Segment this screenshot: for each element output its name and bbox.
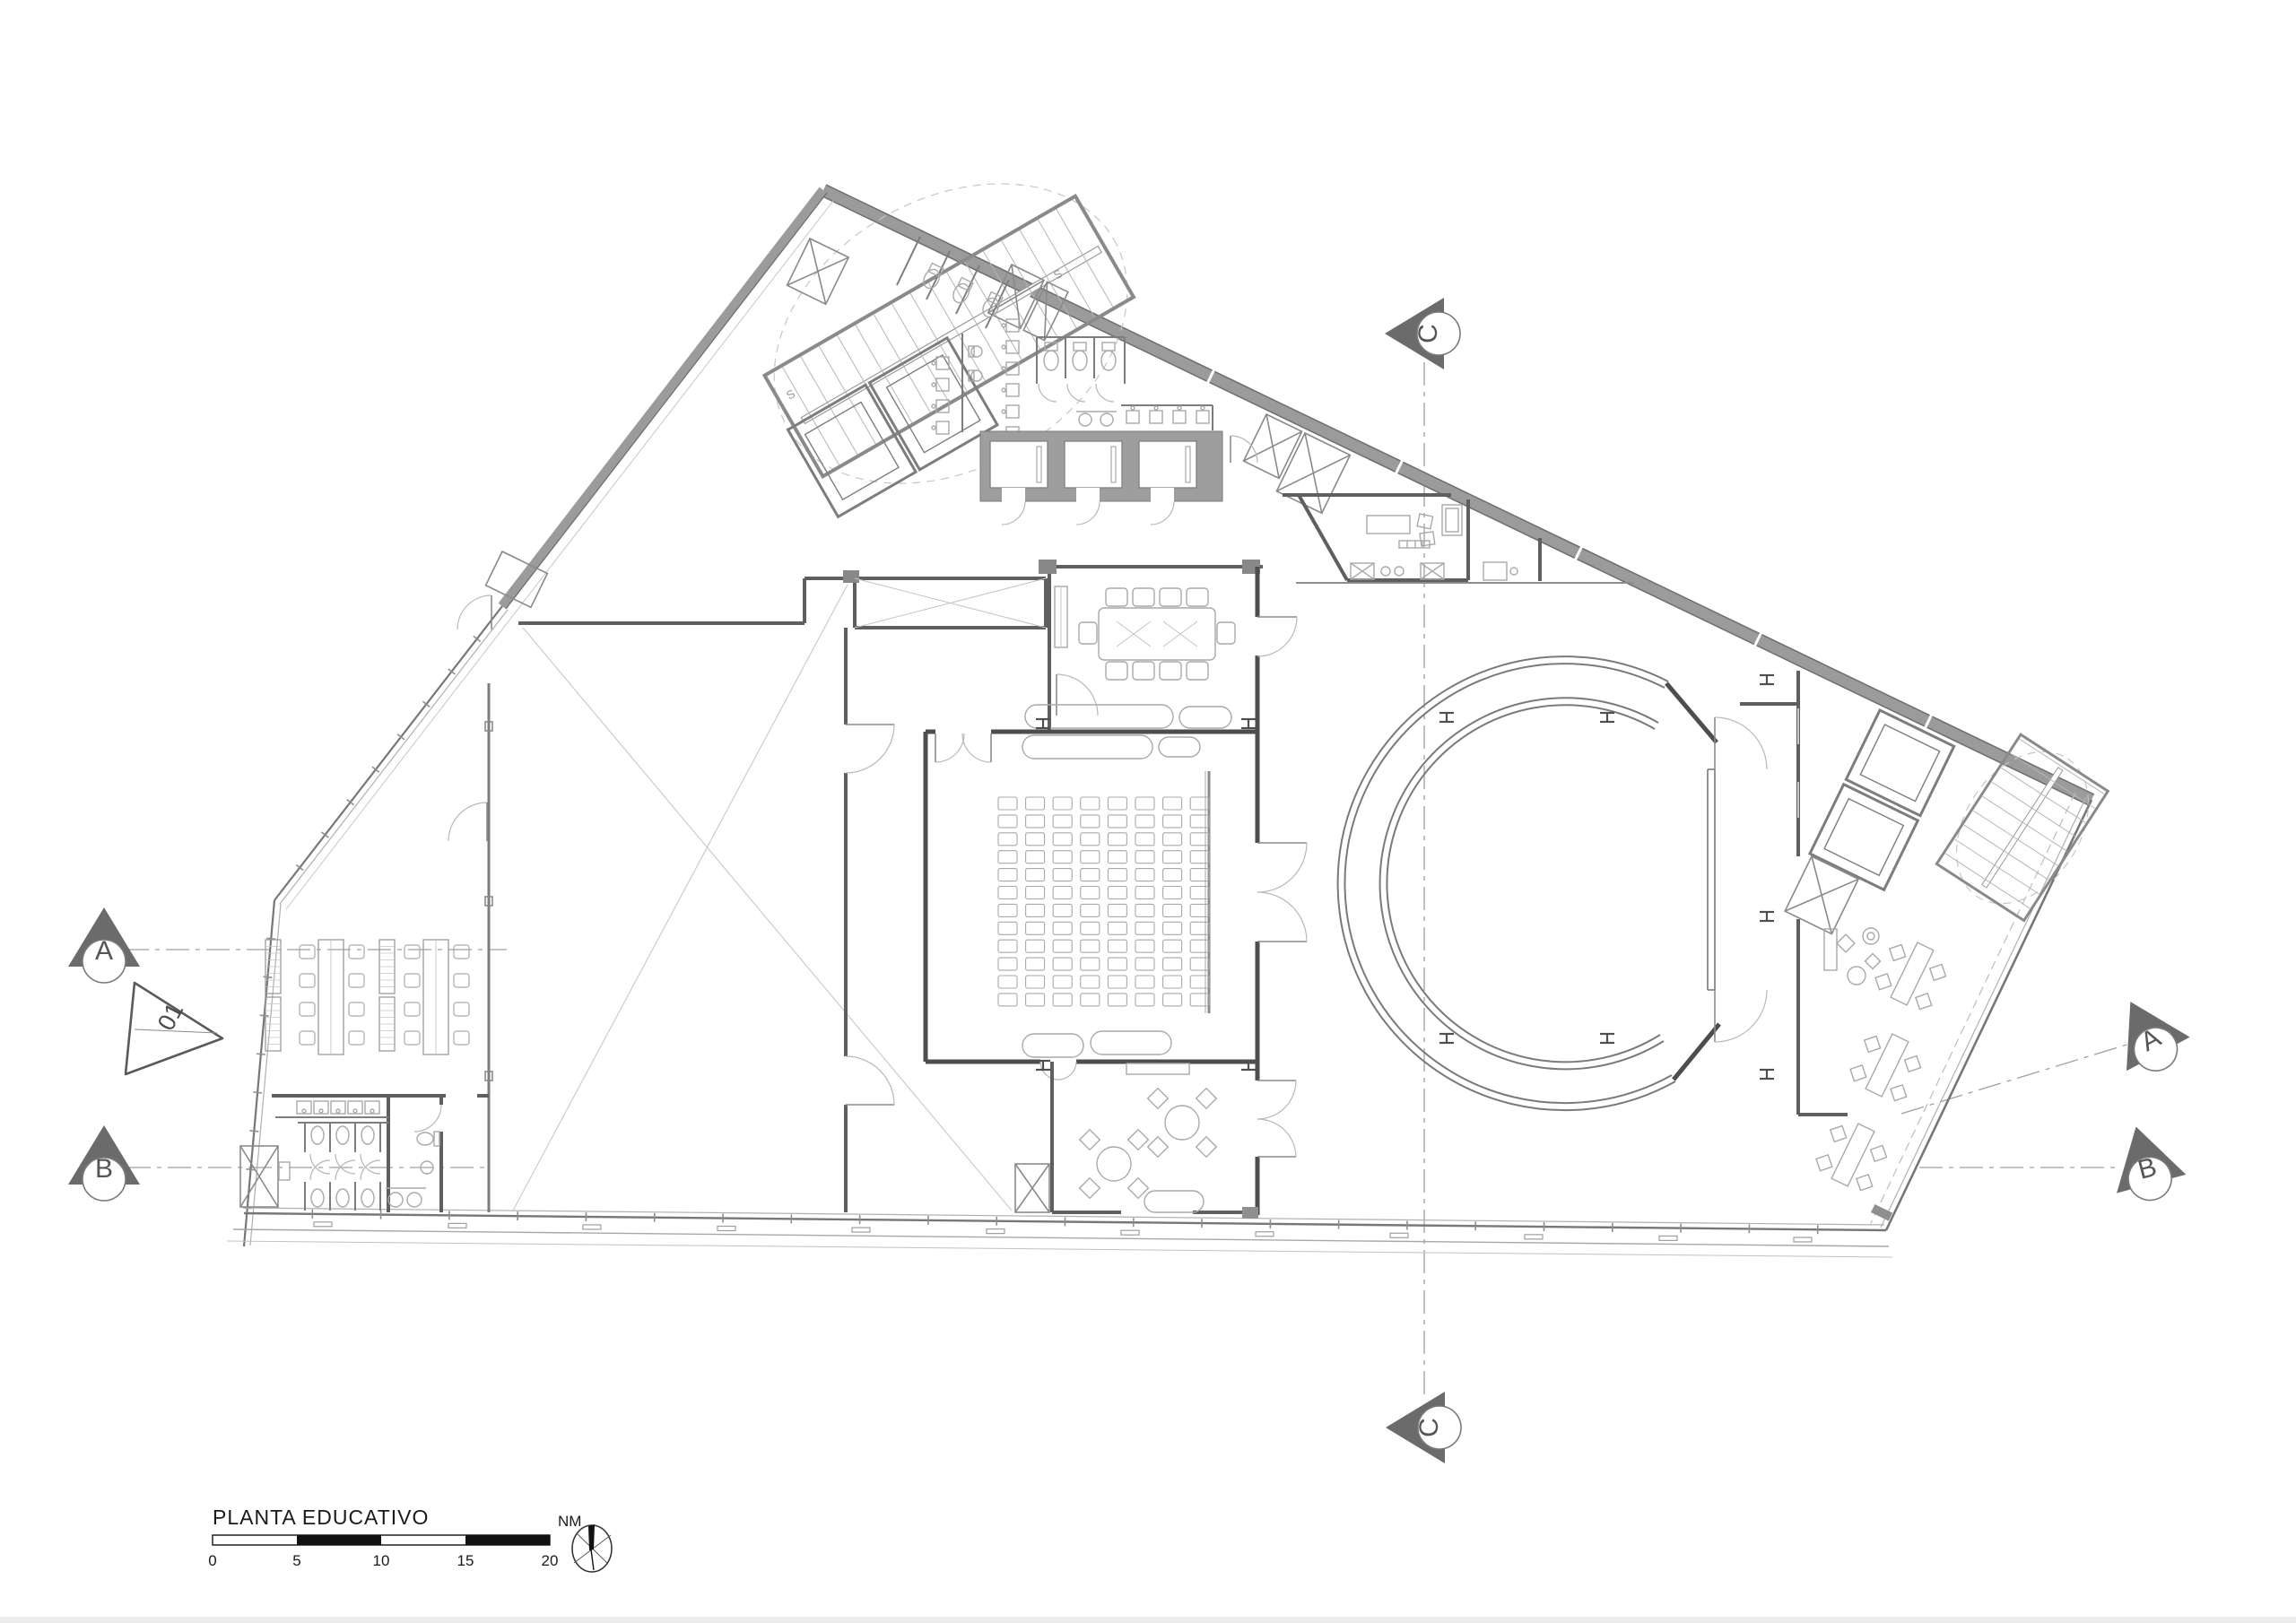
accessible-wc	[386, 1132, 439, 1207]
grid-marker-c-bottom: C	[1386, 1392, 1461, 1463]
north-compass: NM	[558, 1513, 612, 1572]
meeting-table	[1099, 608, 1215, 660]
auditorium-seating	[998, 797, 1209, 1006]
scale-0: 0	[208, 1552, 216, 1569]
bathrooms-sw	[240, 1096, 489, 1212]
plan-title: PLANTA EDUCATIVO	[213, 1506, 429, 1529]
meeting-room	[1039, 560, 1263, 733]
grid-lines	[126, 362, 2133, 1397]
grid-letter: C	[1414, 1418, 1444, 1437]
east-corridor-wall	[1257, 567, 1307, 1215]
sheet-edge	[0, 1617, 2296, 1623]
elevators-east	[1810, 710, 1954, 890]
grid-marker-a-left: A	[68, 907, 140, 983]
circular-room	[1338, 656, 1767, 1110]
scale-20: 20	[542, 1552, 559, 1569]
booth-rooms	[980, 431, 1222, 525]
shaft-bottom-left	[240, 1146, 278, 1207]
north-label: NM	[558, 1513, 581, 1530]
round-table-2	[1080, 1130, 1149, 1199]
cafeteria	[1015, 1062, 1258, 1219]
drawing-sheet: S S	[0, 0, 2296, 1623]
grid-line-a-right	[1901, 1043, 2133, 1114]
storage-strip	[518, 570, 1046, 628]
kitchen-room	[1283, 495, 1634, 583]
scale-15: 15	[457, 1552, 474, 1569]
auditorium	[926, 732, 1257, 1080]
grid-letter: A	[95, 936, 113, 966]
grid-letter: C	[1413, 324, 1443, 343]
grid-letter: B	[95, 1154, 113, 1184]
lounge-se	[1812, 928, 1954, 1196]
scale-bar: 0 5 10 15 20	[208, 1535, 558, 1569]
multipurpose-hall	[457, 551, 1012, 1212]
east-core	[1740, 671, 2116, 1115]
glazed-opening	[1708, 769, 1715, 990]
copier	[1483, 562, 1518, 580]
meeting-chairs	[1079, 588, 1235, 680]
building-envelope	[227, 185, 2094, 1257]
north-needle	[588, 1524, 595, 1550]
grid-marker-b-right: B	[2101, 1117, 2190, 1209]
steel-columns	[1036, 675, 1774, 1079]
grid-marker-c-top: C	[1385, 298, 1460, 369]
section-marker-01: 01	[126, 983, 222, 1074]
floor-plan-canvas: S S	[0, 0, 2296, 1623]
shaft-east	[1785, 856, 1858, 934]
round-table-1	[1148, 1089, 1217, 1158]
scale-5: 5	[292, 1552, 300, 1569]
classroom-west	[265, 683, 492, 1212]
shaft-sw	[1015, 1164, 1049, 1212]
grid-marker-a-right: A	[2099, 985, 2197, 1085]
grid-marker-b-left: B	[68, 1125, 140, 1201]
scale-10: 10	[373, 1552, 390, 1569]
